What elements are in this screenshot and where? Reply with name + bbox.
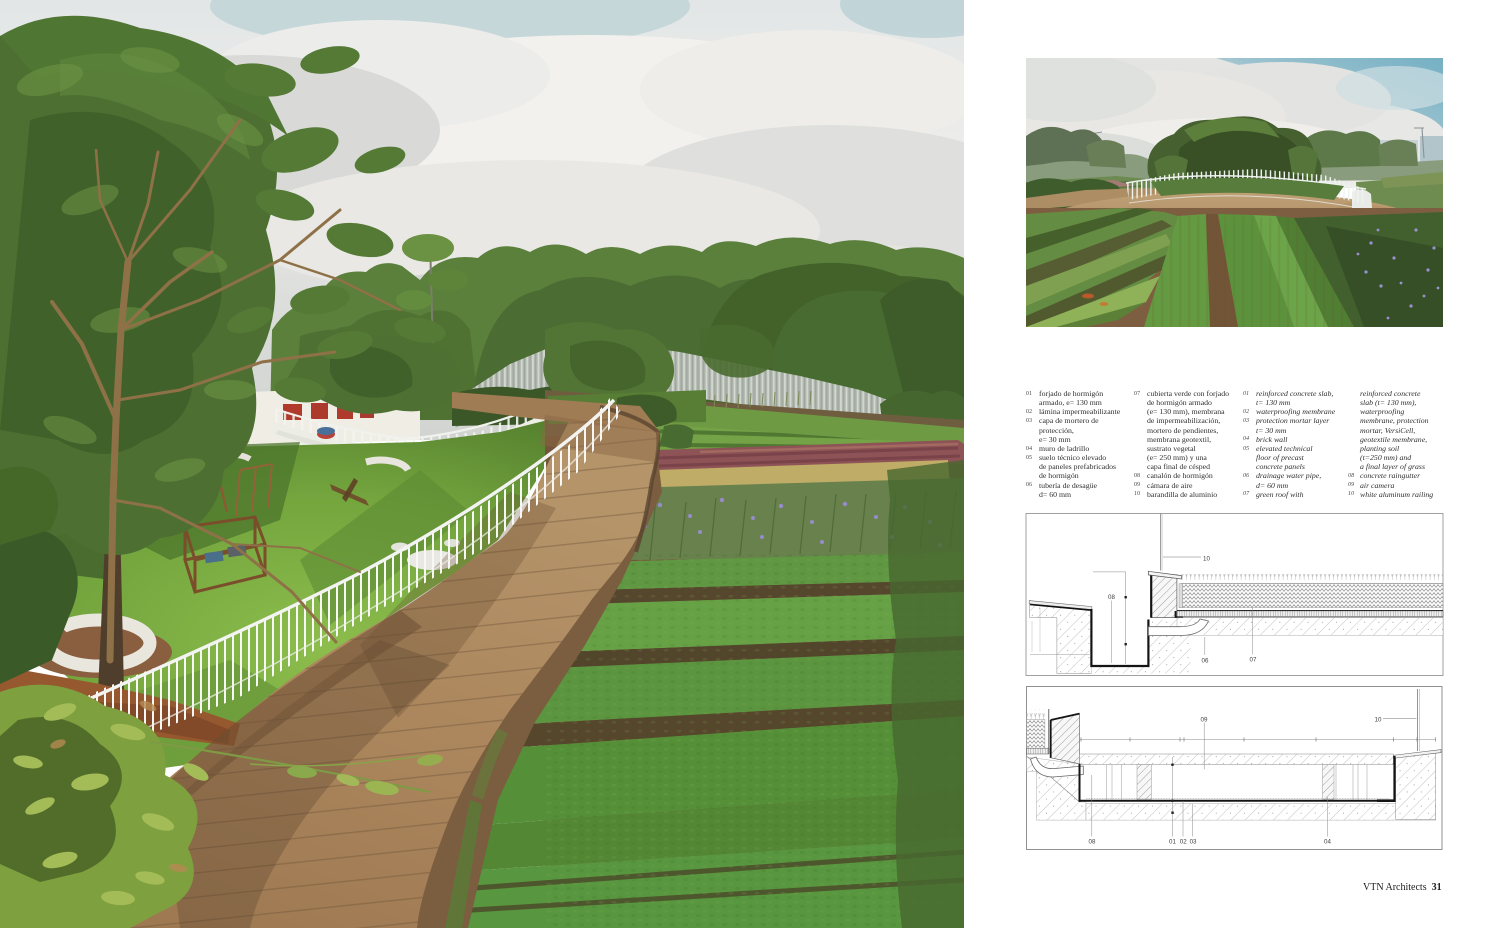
svg-text:07: 07	[1250, 657, 1257, 664]
svg-text:02: 02	[1180, 838, 1187, 845]
svg-text:03: 03	[1190, 838, 1197, 845]
svg-text:04: 04	[1324, 838, 1331, 845]
svg-text:09: 09	[1201, 717, 1208, 724]
svg-text:06: 06	[1202, 658, 1209, 665]
svg-text:01: 01	[1169, 838, 1176, 845]
svg-text:10: 10	[1375, 717, 1382, 724]
svg-text:08: 08	[1089, 838, 1096, 845]
svg-text:08: 08	[1108, 594, 1115, 601]
svg-text:10: 10	[1203, 555, 1210, 562]
